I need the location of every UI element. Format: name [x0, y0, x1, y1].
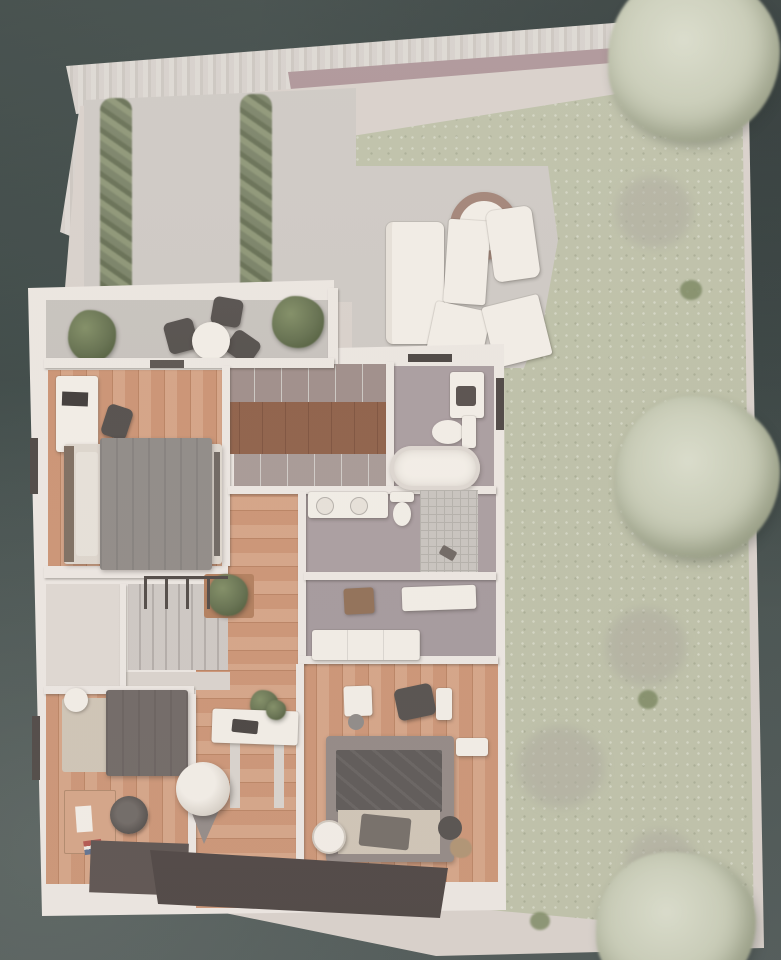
vanity-desk: [343, 686, 372, 717]
kids-bed-blanket: [106, 690, 188, 776]
hanging-chair: [176, 762, 230, 816]
hedge-strip: [100, 98, 132, 302]
office-chair: [110, 796, 148, 834]
pouf: [438, 816, 462, 840]
wall: [44, 358, 334, 368]
vanity-basin: [456, 386, 476, 406]
shrub-dot: [530, 912, 550, 930]
outdoor-armchair: [485, 205, 541, 283]
wall: [222, 366, 230, 566]
utility-counter: [402, 585, 477, 612]
round-dining-table: [192, 322, 230, 360]
toilet-bowl: [393, 502, 411, 526]
hedge-strip: [240, 94, 272, 304]
balcony-side-wall: [328, 288, 338, 364]
bed2-blanket: [336, 750, 442, 812]
lawn-bush: [606, 608, 686, 686]
bed-bench: [214, 452, 220, 556]
toilet-tank: [462, 416, 476, 448]
teddy-bear: [450, 838, 472, 858]
vanity-stool: [348, 714, 364, 730]
console-leg: [274, 742, 284, 808]
console-plant: [266, 700, 286, 720]
desk-paper: [75, 805, 93, 832]
tree-top-right: [608, 0, 780, 142]
bed2-pillow: [358, 813, 411, 850]
coffee-table: [443, 219, 491, 306]
utility-sideboard: [312, 630, 420, 660]
shrub-dot: [680, 280, 702, 300]
planter-right: [272, 296, 324, 348]
bed-pillows: [76, 452, 98, 556]
window-slit: [32, 716, 40, 780]
bathtub: [390, 446, 480, 490]
window-slit: [496, 378, 504, 430]
wall: [304, 572, 496, 580]
wardrobe: [56, 376, 98, 452]
bed-blanket: [100, 438, 212, 570]
washbasin: [316, 497, 334, 515]
washbasin: [350, 497, 368, 515]
planter-left: [68, 310, 116, 362]
window-slit: [30, 438, 38, 494]
closet-wardrobe-top: [228, 364, 388, 402]
tree-mid-right: [616, 396, 780, 558]
kids-bed-pillow: [64, 688, 88, 712]
toilet-bowl: [432, 420, 464, 444]
lawn-bush: [518, 726, 604, 808]
bed-headboard: [64, 446, 74, 562]
nightstand: [456, 738, 488, 756]
floor-plan-model: [0, 0, 781, 960]
window-slit: [408, 354, 452, 362]
utility-side-table: [343, 587, 374, 615]
cabinet: [436, 688, 452, 720]
storage-room-floor: [46, 584, 122, 686]
laptop: [231, 719, 258, 735]
shrub-dot: [638, 690, 658, 709]
wall: [120, 584, 126, 686]
stair-railing: [144, 576, 228, 609]
console-leg: [230, 742, 240, 808]
lawn-bush: [616, 176, 692, 248]
toilet-tank: [390, 492, 414, 502]
door-opening: [150, 360, 184, 368]
ottoman: [312, 820, 346, 854]
walk-in-closet-floor: [228, 402, 388, 454]
tv: [62, 392, 88, 407]
